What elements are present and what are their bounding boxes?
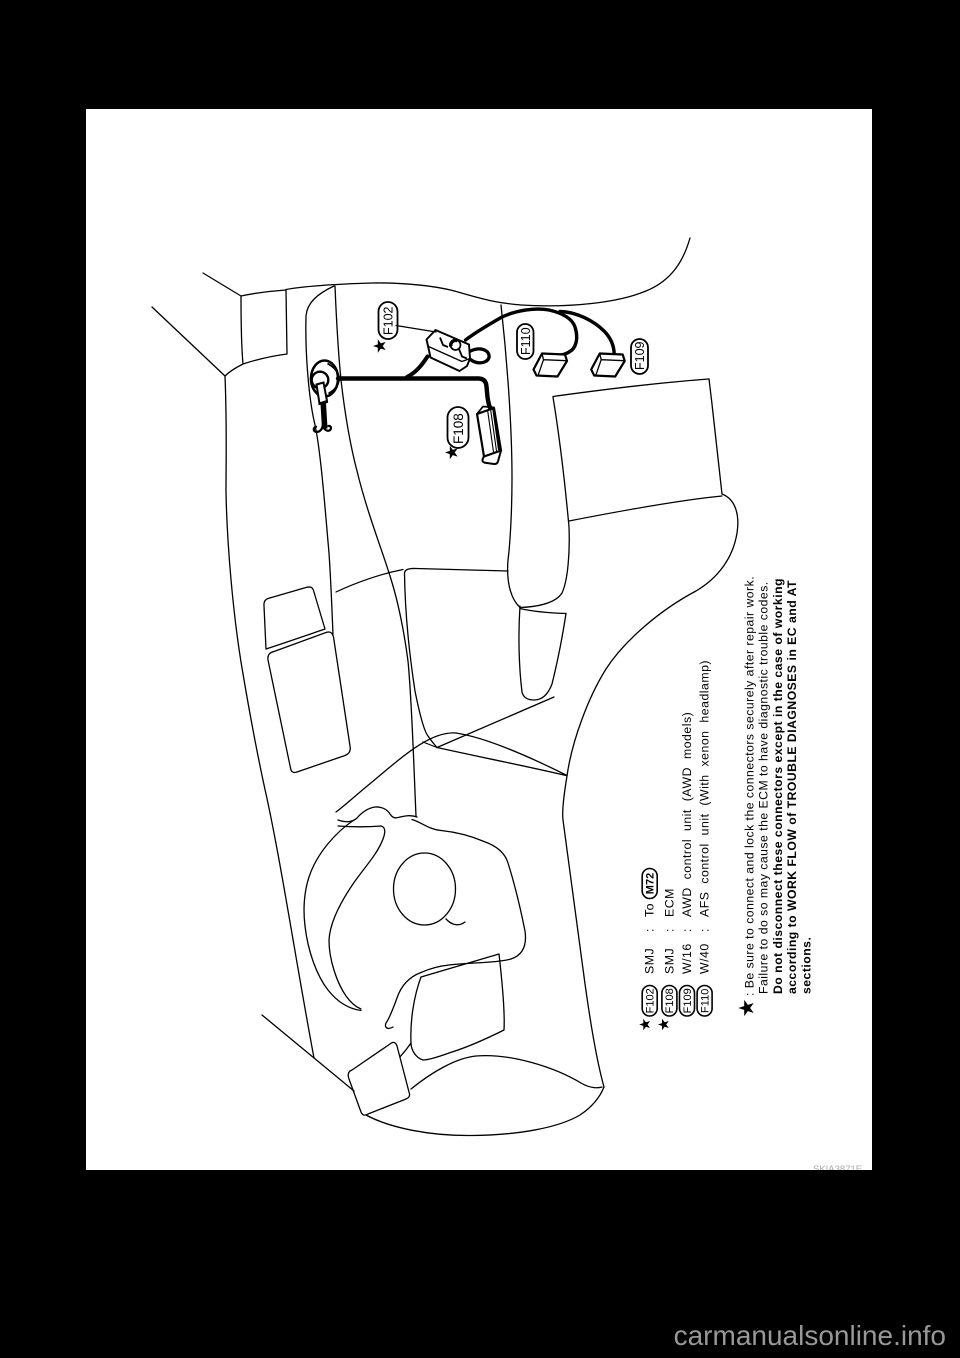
svg-text:AFS control unit (With xenon h: AFS control unit (With xenon headlamp) [698,660,712,917]
svg-text:W/16: W/16 [680,943,694,974]
svg-text:F108: F108 [664,988,676,1013]
svg-text:F109: F109 [682,988,694,1013]
svg-text:according to WORK FLOW of TROU: according to WORK FLOW of TROUBLE DIAGNO… [785,580,799,994]
svg-text:M72: M72 [645,873,657,894]
svg-text:F108: F108 [451,413,466,444]
svg-text::: : [680,928,694,932]
svg-text:SMJ: SMJ [662,948,676,974]
svg-text:Failure to do so may cause the: Failure to do so may cause the ECM to ha… [757,581,771,994]
svg-text::: : [662,928,676,932]
svg-text:F102: F102 [382,306,396,335]
svg-text:carmanualsonline.info: carmanualsonline.info [674,1320,946,1351]
svg-text::: : [698,928,712,932]
svg-text:W/40: W/40 [698,943,712,974]
svg-text:SMJ: SMJ [643,948,657,974]
svg-text:Do not disconnect these connec: Do not disconnect these connectors excep… [771,578,785,994]
svg-text:: Be sure to connect and lock: : Be sure to connect and lock the connec… [743,576,757,996]
svg-text:F110: F110 [699,989,711,1013]
svg-text:To: To [643,903,657,917]
svg-text:F110: F110 [519,327,533,355]
svg-text:AWD control unit (AWD models): AWD control unit (AWD models) [680,712,694,917]
svg-text:F109: F109 [633,341,647,370]
svg-text:F102: F102 [645,988,657,1013]
svg-text::: : [643,928,657,932]
svg-text:sections.: sections. [799,937,813,994]
svg-text:ECM: ECM [662,888,676,917]
